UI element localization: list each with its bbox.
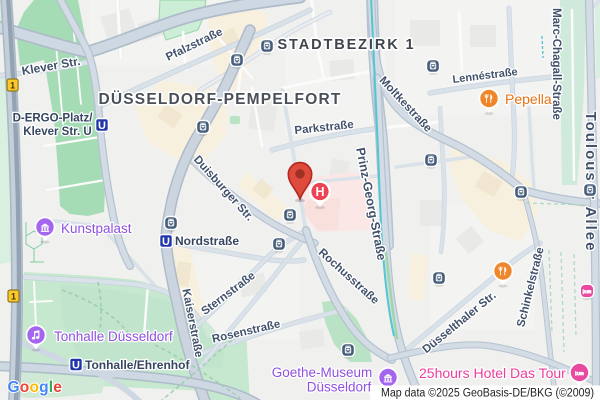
svg-text:STADTBEZIRK 1: STADTBEZIRK 1 [277, 37, 415, 53]
svg-text:Nordstraße: Nordstraße [175, 234, 239, 248]
svg-text:Goethe-Museum: Goethe-Museum [272, 365, 373, 380]
svg-text:H: H [315, 185, 324, 199]
svg-text:Toulouser Allee: Toulouser Allee [582, 112, 599, 253]
svg-text:U: U [98, 120, 106, 132]
svg-text:DÜSSELDORF-PEMPELFORT: DÜSSELDORF-PEMPELFORT [98, 91, 341, 108]
svg-text:Pepella: Pepella [505, 91, 552, 107]
svg-text:Map data ©2025 GeoBasis-DE/BKG: Map data ©2025 GeoBasis-DE/BKG (©2009) [381, 388, 594, 400]
svg-text:U: U [162, 236, 170, 248]
svg-text:Google: Google [8, 379, 63, 396]
svg-text:Marc-Chagall-Straße: Marc-Chagall-Straße [550, 8, 562, 120]
svg-text:D-ERGO-Platz/: D-ERGO-Platz/ [13, 113, 94, 125]
svg-text:Klever Str. U: Klever Str. U [23, 126, 91, 138]
svg-text:Tonhalle Düsseldorf: Tonhalle Düsseldorf [54, 329, 173, 344]
svg-text:25hours Hotel Das Tour: 25hours Hotel Das Tour [419, 365, 566, 381]
svg-text:Tonhalle/Ehrenhof: Tonhalle/Ehrenhof [85, 358, 190, 372]
svg-text:U: U [72, 359, 80, 371]
svg-text:1: 1 [10, 81, 15, 91]
svg-text:Düsseldorf: Düsseldorf [307, 380, 372, 395]
svg-text:Kunstpalast: Kunstpalast [61, 221, 132, 236]
svg-text:1: 1 [11, 292, 16, 302]
